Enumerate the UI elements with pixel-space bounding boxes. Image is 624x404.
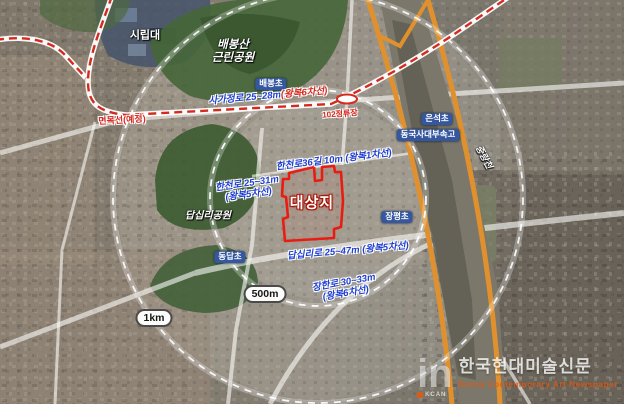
watermark: in KCAN 한국현대미술신문 Korea Contemporary Art … [417, 357, 618, 398]
school-dongguk-hs: 동국사대부속고 [397, 129, 460, 141]
satellite-map: 시립대 배봉산 근린공원 답십리공원 중랑천 대상지 배봉초 은석초 동국사대부… [0, 0, 624, 404]
label-park: 답십리공원 [185, 210, 231, 222]
watermark-title: 한국현대미술신문 [459, 357, 618, 377]
radius-label-1km: 1km [135, 309, 172, 327]
label-mountain-park-line1: 배봉산 [212, 39, 254, 52]
watermark-subtitle: Korea Contemporary Art Newspaper [459, 379, 618, 389]
station-marker [337, 95, 357, 104]
watermark-logo-block: in KCAN [417, 357, 453, 398]
label-mountain-park-line2: 근린공원 [212, 52, 254, 65]
school-dongdap: 동답초 [214, 251, 245, 263]
kcan-square-icon [417, 392, 423, 398]
school-eunseok: 은석초 [421, 113, 452, 125]
campus-building [128, 44, 146, 56]
watermark-logo: in [417, 357, 453, 391]
label-mountain-park: 배봉산 근린공원 [212, 39, 254, 65]
label-university: 시립대 [130, 30, 160, 43]
school-baebong: 배봉초 [255, 78, 286, 90]
watermark-kcan-text: KCAN [425, 392, 446, 398]
watermark-text-block: 한국현대미술신문 Korea Contemporary Art Newspape… [459, 357, 618, 389]
apartment-area-east [498, 38, 562, 90]
radius-label-500m: 500m [244, 285, 287, 303]
school-jangpyeong: 장평초 [381, 211, 412, 223]
label-target-site: 대상지 [290, 194, 334, 211]
